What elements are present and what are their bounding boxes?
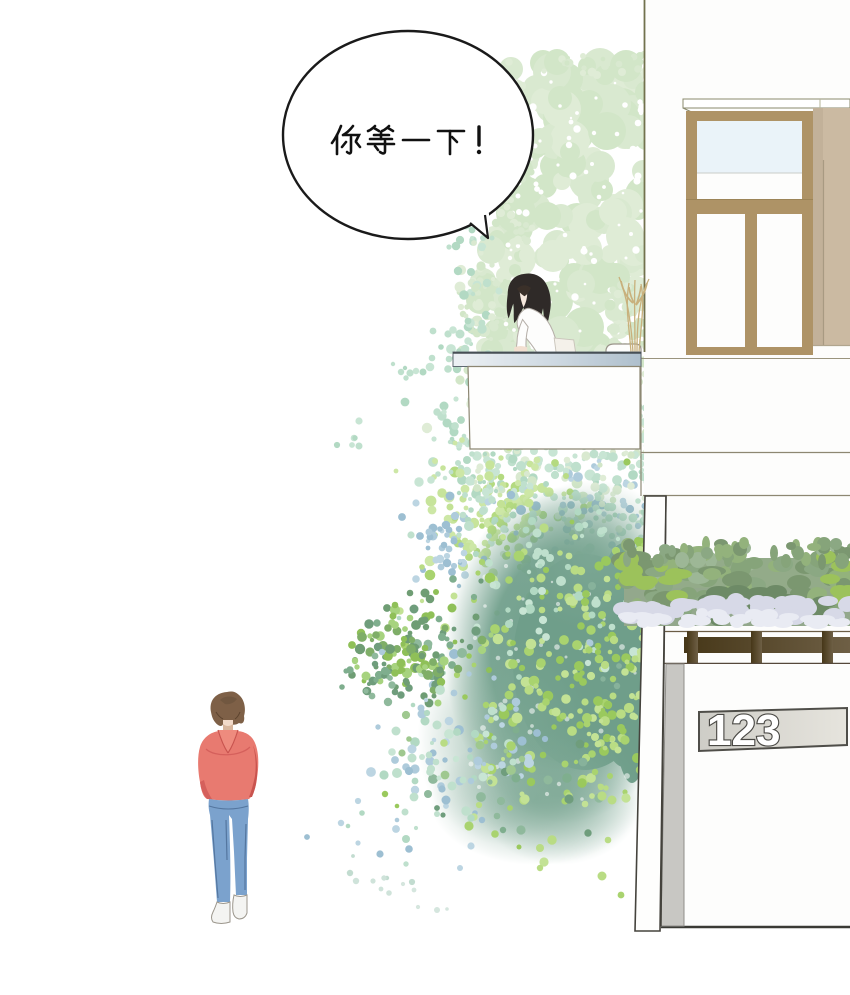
svg-text:123: 123 xyxy=(707,706,780,755)
